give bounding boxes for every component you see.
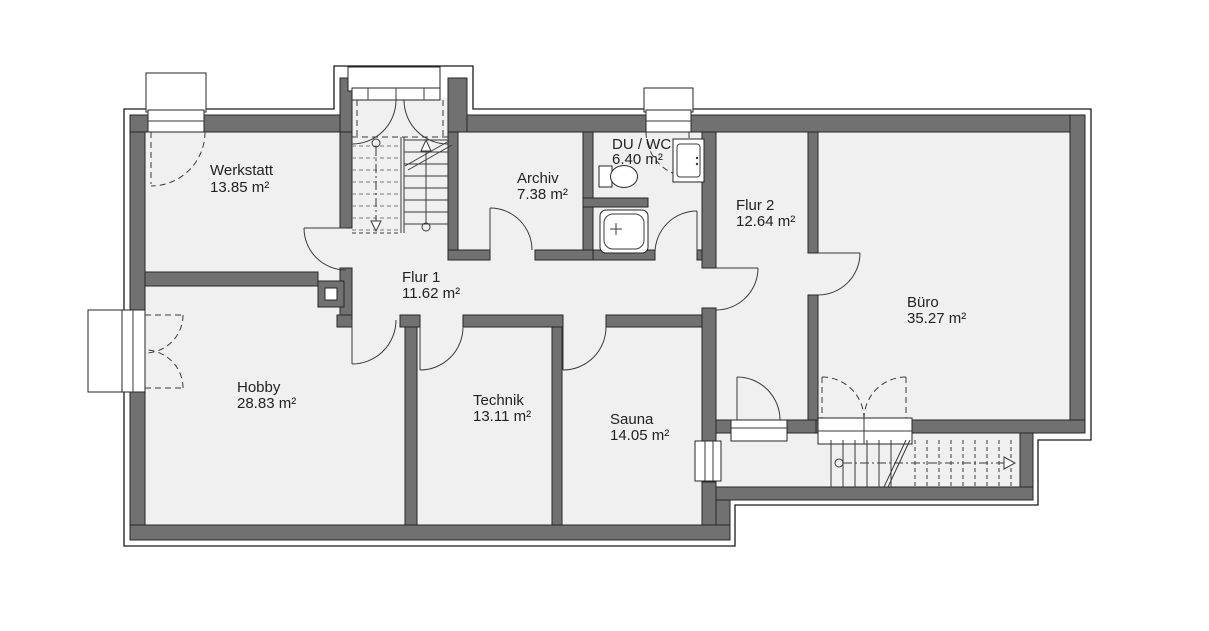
svg-text:7.38 m²: 7.38 m²: [517, 186, 568, 203]
svg-text:11.62 m²: 11.62 m²: [402, 285, 460, 302]
svg-text:35.27 m²: 35.27 m²: [907, 310, 966, 327]
room-label-duwc: DU / WC 6.40 m²: [612, 136, 671, 168]
svg-text:13.85 m²: 13.85 m²: [210, 179, 269, 196]
room-label-technik: Technik 13.11 m²: [473, 392, 531, 425]
room-label-werkstatt: Werkstatt 13.85 m²: [210, 162, 274, 196]
svg-text:Flur 1: Flur 1: [402, 269, 440, 286]
svg-text:Werkstatt: Werkstatt: [210, 162, 274, 179]
floor-plan-canvas: Werkstatt 13.85 m² Archiv 7.38 m² DU / W…: [0, 0, 1209, 631]
svg-text:14.05 m²: 14.05 m²: [610, 427, 669, 444]
svg-text:12.64 m²: 12.64 m²: [736, 213, 795, 230]
landing-window: [695, 441, 721, 481]
svg-text:Sauna: Sauna: [610, 411, 654, 428]
stair-bay-window: [348, 67, 440, 100]
svg-text:Archiv: Archiv: [517, 170, 559, 187]
pillar: [318, 281, 344, 307]
svg-text:28.83 m²: 28.83 m²: [237, 395, 296, 412]
toilet-fixture: [599, 166, 638, 188]
svg-text:Hobby: Hobby: [237, 379, 281, 396]
svg-text:Flur 2: Flur 2: [736, 197, 774, 214]
svg-text:6.40 m²: 6.40 m²: [612, 151, 663, 168]
washbasin-fixture: [673, 139, 704, 182]
floor-plan-drawing: Werkstatt 13.85 m² Archiv 7.38 m² DU / W…: [0, 0, 1209, 631]
svg-text:13.11 m²: 13.11 m²: [473, 408, 531, 425]
svg-text:Büro: Büro: [907, 294, 939, 311]
shower-fixture: [600, 210, 648, 253]
svg-text:Technik: Technik: [473, 392, 524, 409]
